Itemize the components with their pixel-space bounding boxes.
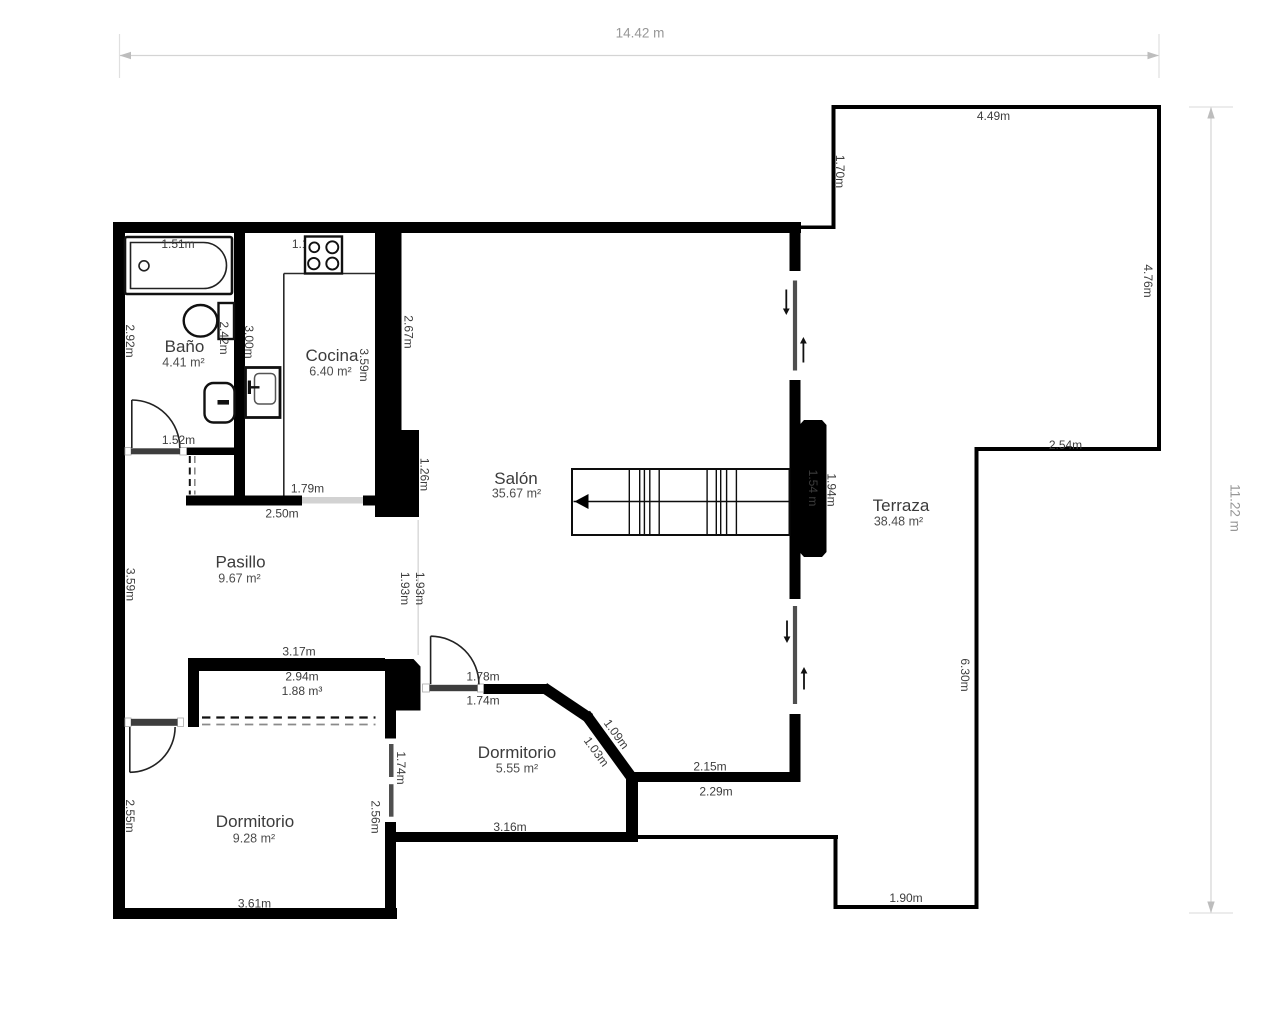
svg-text:Dormitorio: Dormitorio [216,812,294,831]
svg-text:1.79m: 1.79m [291,482,324,496]
svg-text:Baño: Baño [165,337,205,356]
svg-text:6.40 m²: 6.40 m² [309,365,351,379]
svg-text:6.30m: 6.30m [958,658,972,691]
svg-text:3.61m: 3.61m [238,897,271,911]
svg-text:1.93m: 1.93m [413,572,427,605]
svg-text:2.15m: 2.15m [693,760,726,774]
svg-text:1.90m: 1.90m [889,891,922,905]
svg-text:Cocina: Cocina [306,346,359,365]
svg-text:1.51m: 1.51m [161,237,194,251]
svg-text:2.55m: 2.55m [123,799,137,832]
svg-text:3.00m: 3.00m [242,325,256,358]
svg-text:3.59m: 3.59m [357,348,371,381]
svg-text:2.67m: 2.67m [401,315,415,348]
svg-text:1.78m: 1.78m [466,670,499,684]
svg-text:Pasillo: Pasillo [215,553,265,572]
svg-text:1.93m: 1.93m [398,572,412,605]
svg-text:4.76m: 4.76m [1141,264,1155,297]
svg-text:1.26m: 1.26m [417,458,431,491]
svg-text:1.88 m³: 1.88 m³ [282,684,323,698]
svg-text:1.54 m: 1.54 m [806,470,820,507]
svg-text:9.67 m²: 9.67 m² [218,572,260,586]
svg-text:1.52m: 1.52m [162,433,195,447]
svg-text:2.50m: 2.50m [265,507,298,521]
svg-text:2.92m: 2.92m [123,324,137,357]
svg-text:14.42 m: 14.42 m [616,26,665,41]
svg-text:Dormitorio: Dormitorio [478,743,556,762]
svg-text:4.41 m²: 4.41 m² [162,356,204,370]
svg-text:38.48 m²: 38.48 m² [874,515,923,529]
svg-text:3.16m: 3.16m [493,820,526,834]
svg-text:2.56m: 2.56m [368,800,382,833]
svg-text:1.74m: 1.74m [466,694,499,708]
svg-text:9.28 m²: 9.28 m² [233,832,275,846]
svg-text:Terraza: Terraza [873,496,930,515]
svg-text:2.42m: 2.42m [217,321,231,354]
svg-text:2.29m: 2.29m [699,785,732,799]
svg-text:1.94m: 1.94m [824,473,838,506]
svg-text:2.54m: 2.54m [1049,438,1082,452]
svg-text:3.17m: 3.17m [282,645,315,659]
svg-text:35.67 m²: 35.67 m² [492,487,541,501]
svg-text:4.49m: 4.49m [977,109,1010,123]
svg-text:3.59m: 3.59m [123,568,137,601]
svg-text:2.94m: 2.94m [285,670,318,684]
svg-text:5.55 m²: 5.55 m² [496,762,538,776]
svg-text:1.70m: 1.70m [833,155,847,188]
svg-text:Salón: Salón [494,469,537,488]
svg-text:1.74m: 1.74m [394,751,408,784]
svg-text:11.22 m: 11.22 m [1228,484,1243,532]
